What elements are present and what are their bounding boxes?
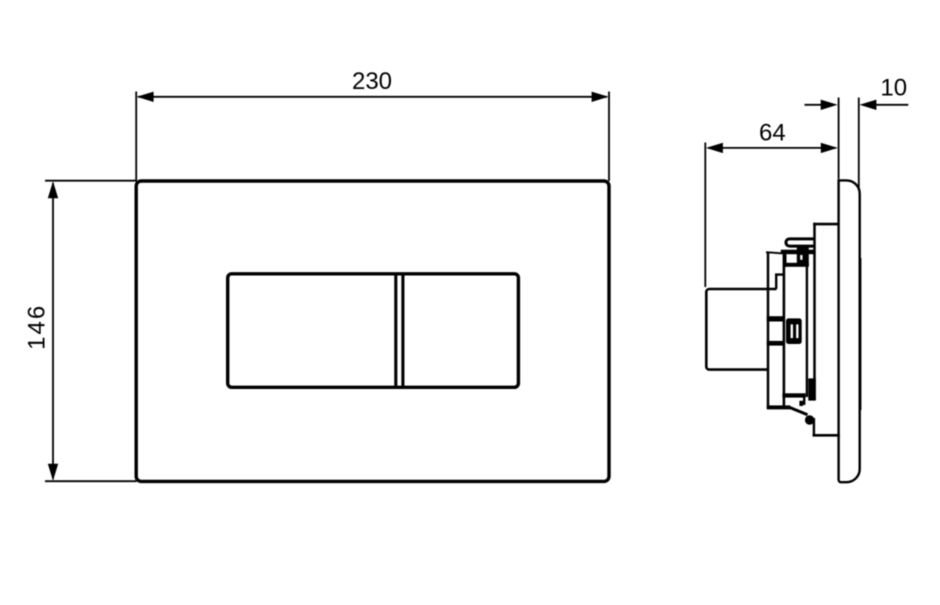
svg-text:64: 64 xyxy=(759,119,786,146)
svg-text:230: 230 xyxy=(352,68,392,95)
svg-text:146: 146 xyxy=(23,304,50,350)
svg-text:10: 10 xyxy=(880,75,907,102)
